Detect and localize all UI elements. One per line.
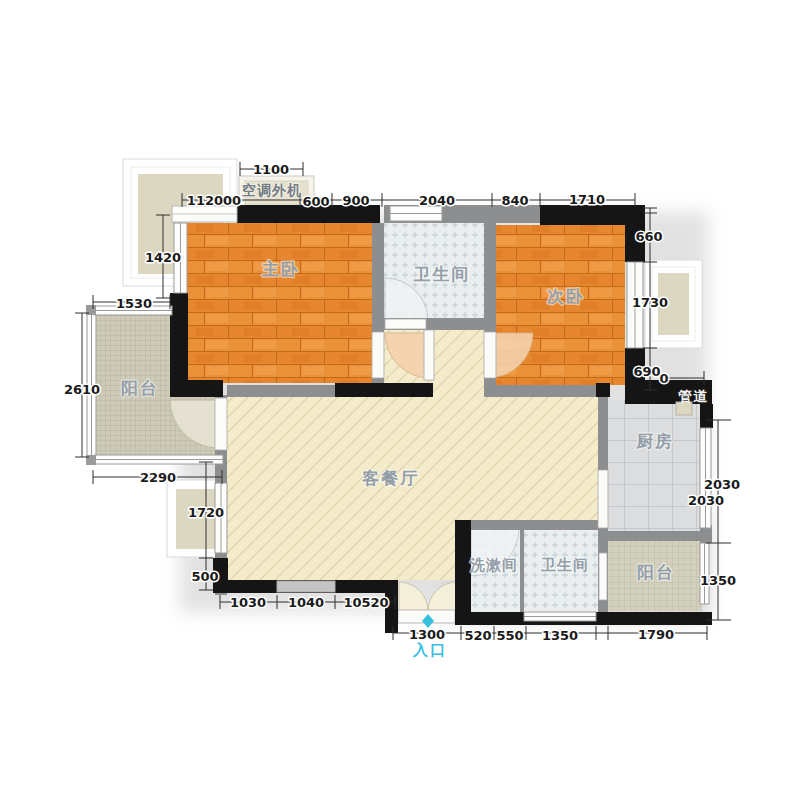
dim-bottom-inner-10520: 10520 <box>343 595 388 610</box>
dim-bottom-outer-550: 550 <box>496 628 523 643</box>
entrance-label: 入口 <box>412 641 447 659</box>
dim-top-6: 1710 <box>569 192 605 207</box>
dim-right-690: 690 <box>633 364 660 379</box>
bathroom-top-window <box>390 206 442 221</box>
floorplan: 1100 112000 600 900 2040 840 1710 1420 1… <box>0 0 800 800</box>
dim-left-1530: 1530 <box>116 296 152 311</box>
balcony-bottom-right-label: 阳台 <box>637 562 675 582</box>
dim-bottom-outer-520: 520 <box>464 628 491 643</box>
dim-left-1720: 1720 <box>188 505 224 520</box>
living-bottom-window <box>277 581 335 592</box>
dim-left-1420: 1420 <box>145 250 181 265</box>
dim-top-5: 840 <box>501 193 528 208</box>
dim-bottom-outer-1790: 1790 <box>638 627 674 642</box>
dim-top-1: 112000 <box>187 193 241 208</box>
balcony-left-label: 阳台 <box>121 378 159 398</box>
duct-label: 管道 <box>677 388 708 404</box>
bathroom-bottom-window <box>524 612 596 621</box>
dim-bottom-outer-1350: 1350 <box>542 628 578 643</box>
master-bedroom-label: 主卧 <box>262 259 300 279</box>
washroom-label: 洗漱间 <box>469 556 518 574</box>
dim-right-660: 660 <box>635 229 662 244</box>
dim-ac-width: 1100 <box>253 162 289 177</box>
dim-left-500: 500 <box>191 569 218 584</box>
second-bedroom-label: 次卧 <box>547 286 585 306</box>
dim-top-3: 900 <box>342 193 369 208</box>
dim-right-1350: 1350 <box>700 573 736 588</box>
kitchen-floor <box>608 400 702 531</box>
kitchen-label: 厨房 <box>635 431 674 451</box>
living-dining-label: 客餐厅 <box>362 468 420 488</box>
bathroom-top-label: 卫生间 <box>413 264 471 284</box>
dim-right-2030a: 2030 <box>704 477 740 492</box>
floorplan-canvas: 1100 112000 600 900 2040 840 1710 1420 1… <box>0 0 800 800</box>
dim-bottom-outer-1300: 1300 <box>409 627 445 642</box>
dim-right-2030b: 2030 <box>688 493 724 508</box>
dim-left-2610: 2610 <box>64 382 100 397</box>
master-top-left-window <box>172 206 237 222</box>
dim-left-2290: 2290 <box>140 470 176 485</box>
dim-top-2: 600 <box>302 194 329 209</box>
dim-bottom-inner-1030: 1030 <box>230 595 266 610</box>
dim-right-overlap-0: 0 <box>659 371 668 386</box>
ac-unit-label: 空调外机 <box>242 182 302 198</box>
dim-bottom-inner-1040: 1040 <box>288 595 324 610</box>
bathroom-bottom-label: 卫生间 <box>540 556 589 574</box>
master-bedroom-floor <box>187 223 372 383</box>
dim-right-1730: 1730 <box>632 295 668 310</box>
dim-top-4: 2040 <box>419 193 455 208</box>
